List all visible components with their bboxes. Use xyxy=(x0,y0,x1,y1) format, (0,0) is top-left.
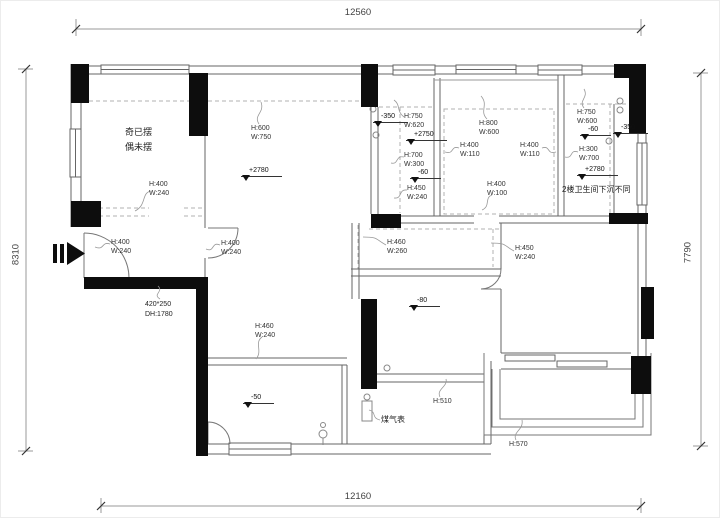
elevation-marker: -50 xyxy=(243,394,274,404)
size-annotation: H:800W:600 xyxy=(479,120,499,137)
size-annotation: H:400W:110 xyxy=(460,142,480,159)
elevation-marker: -60 xyxy=(410,169,441,179)
size-annotation: H:400W:240 xyxy=(149,181,169,198)
thick-walls xyxy=(71,64,654,456)
elevation-triangle-icon xyxy=(411,177,419,183)
size-annotation: H:600W:750 xyxy=(251,125,271,142)
size-annotation: H:400W:110 xyxy=(520,142,540,159)
thin-walls xyxy=(71,64,646,454)
elevation-marker: +2750 xyxy=(406,131,447,141)
dimension-right-label: 7790 xyxy=(683,235,694,271)
size-annotation: H:400W:240 xyxy=(111,239,131,256)
size-annotation: H:460W:240 xyxy=(255,323,275,340)
size-annotation: H:400W:100 xyxy=(487,181,507,198)
entry-beam-note: 420*250DH:1780 xyxy=(145,300,173,320)
elevation-marker: +2780 xyxy=(577,166,618,176)
elevation-triangle-icon xyxy=(244,402,252,408)
entry-arrow-icon xyxy=(53,242,85,265)
size-annotation: H:450W:240 xyxy=(515,245,535,262)
elevation-marker: -60 xyxy=(580,126,611,136)
leader-lines xyxy=(95,89,585,440)
size-annotation: H:750W:600 xyxy=(577,109,597,126)
elevation-triangle-icon xyxy=(578,174,586,180)
elevation-triangle-icon xyxy=(242,175,250,181)
size-annotation: H:460W:260 xyxy=(387,239,407,256)
dimension-left-label: 8310 xyxy=(11,237,22,273)
floor-plan: 12560 12160 8310 7790 H:400W:240 H:600W:… xyxy=(0,0,720,518)
size-annotation: H:510 xyxy=(433,398,452,407)
elevation-triangle-icon xyxy=(614,132,622,138)
size-annotation: H:700W:300 xyxy=(404,152,424,169)
dimension-bottom-label: 12160 xyxy=(318,491,398,502)
door-arcs xyxy=(84,228,501,444)
elevation-triangle-icon xyxy=(374,121,382,127)
size-annotation: H:400W:240 xyxy=(221,240,241,257)
elevation-marker: -350 xyxy=(373,113,408,123)
size-annotation: H:450W:240 xyxy=(407,185,427,202)
floorplan-linework xyxy=(1,1,720,518)
elevation-marker: -350 xyxy=(613,124,648,134)
sliding-door xyxy=(505,355,607,367)
size-annotation: H:300W:700 xyxy=(579,146,599,163)
elevation-triangle-icon xyxy=(410,305,418,311)
elevation-triangle-icon xyxy=(407,139,415,145)
elevation-marker: +2780 xyxy=(241,167,282,177)
size-annotation: H:570 xyxy=(509,441,528,450)
elevation-triangle-icon xyxy=(581,134,589,140)
dimension-top-label: 12560 xyxy=(318,7,398,18)
gas-meter-note: 煤气表 xyxy=(381,414,405,425)
elevation-marker: -80 xyxy=(409,297,440,307)
room-note: 奇已摆偶未摆 xyxy=(125,125,152,155)
bathroom-note: 2楼卫生间下沉不同 xyxy=(562,184,630,195)
